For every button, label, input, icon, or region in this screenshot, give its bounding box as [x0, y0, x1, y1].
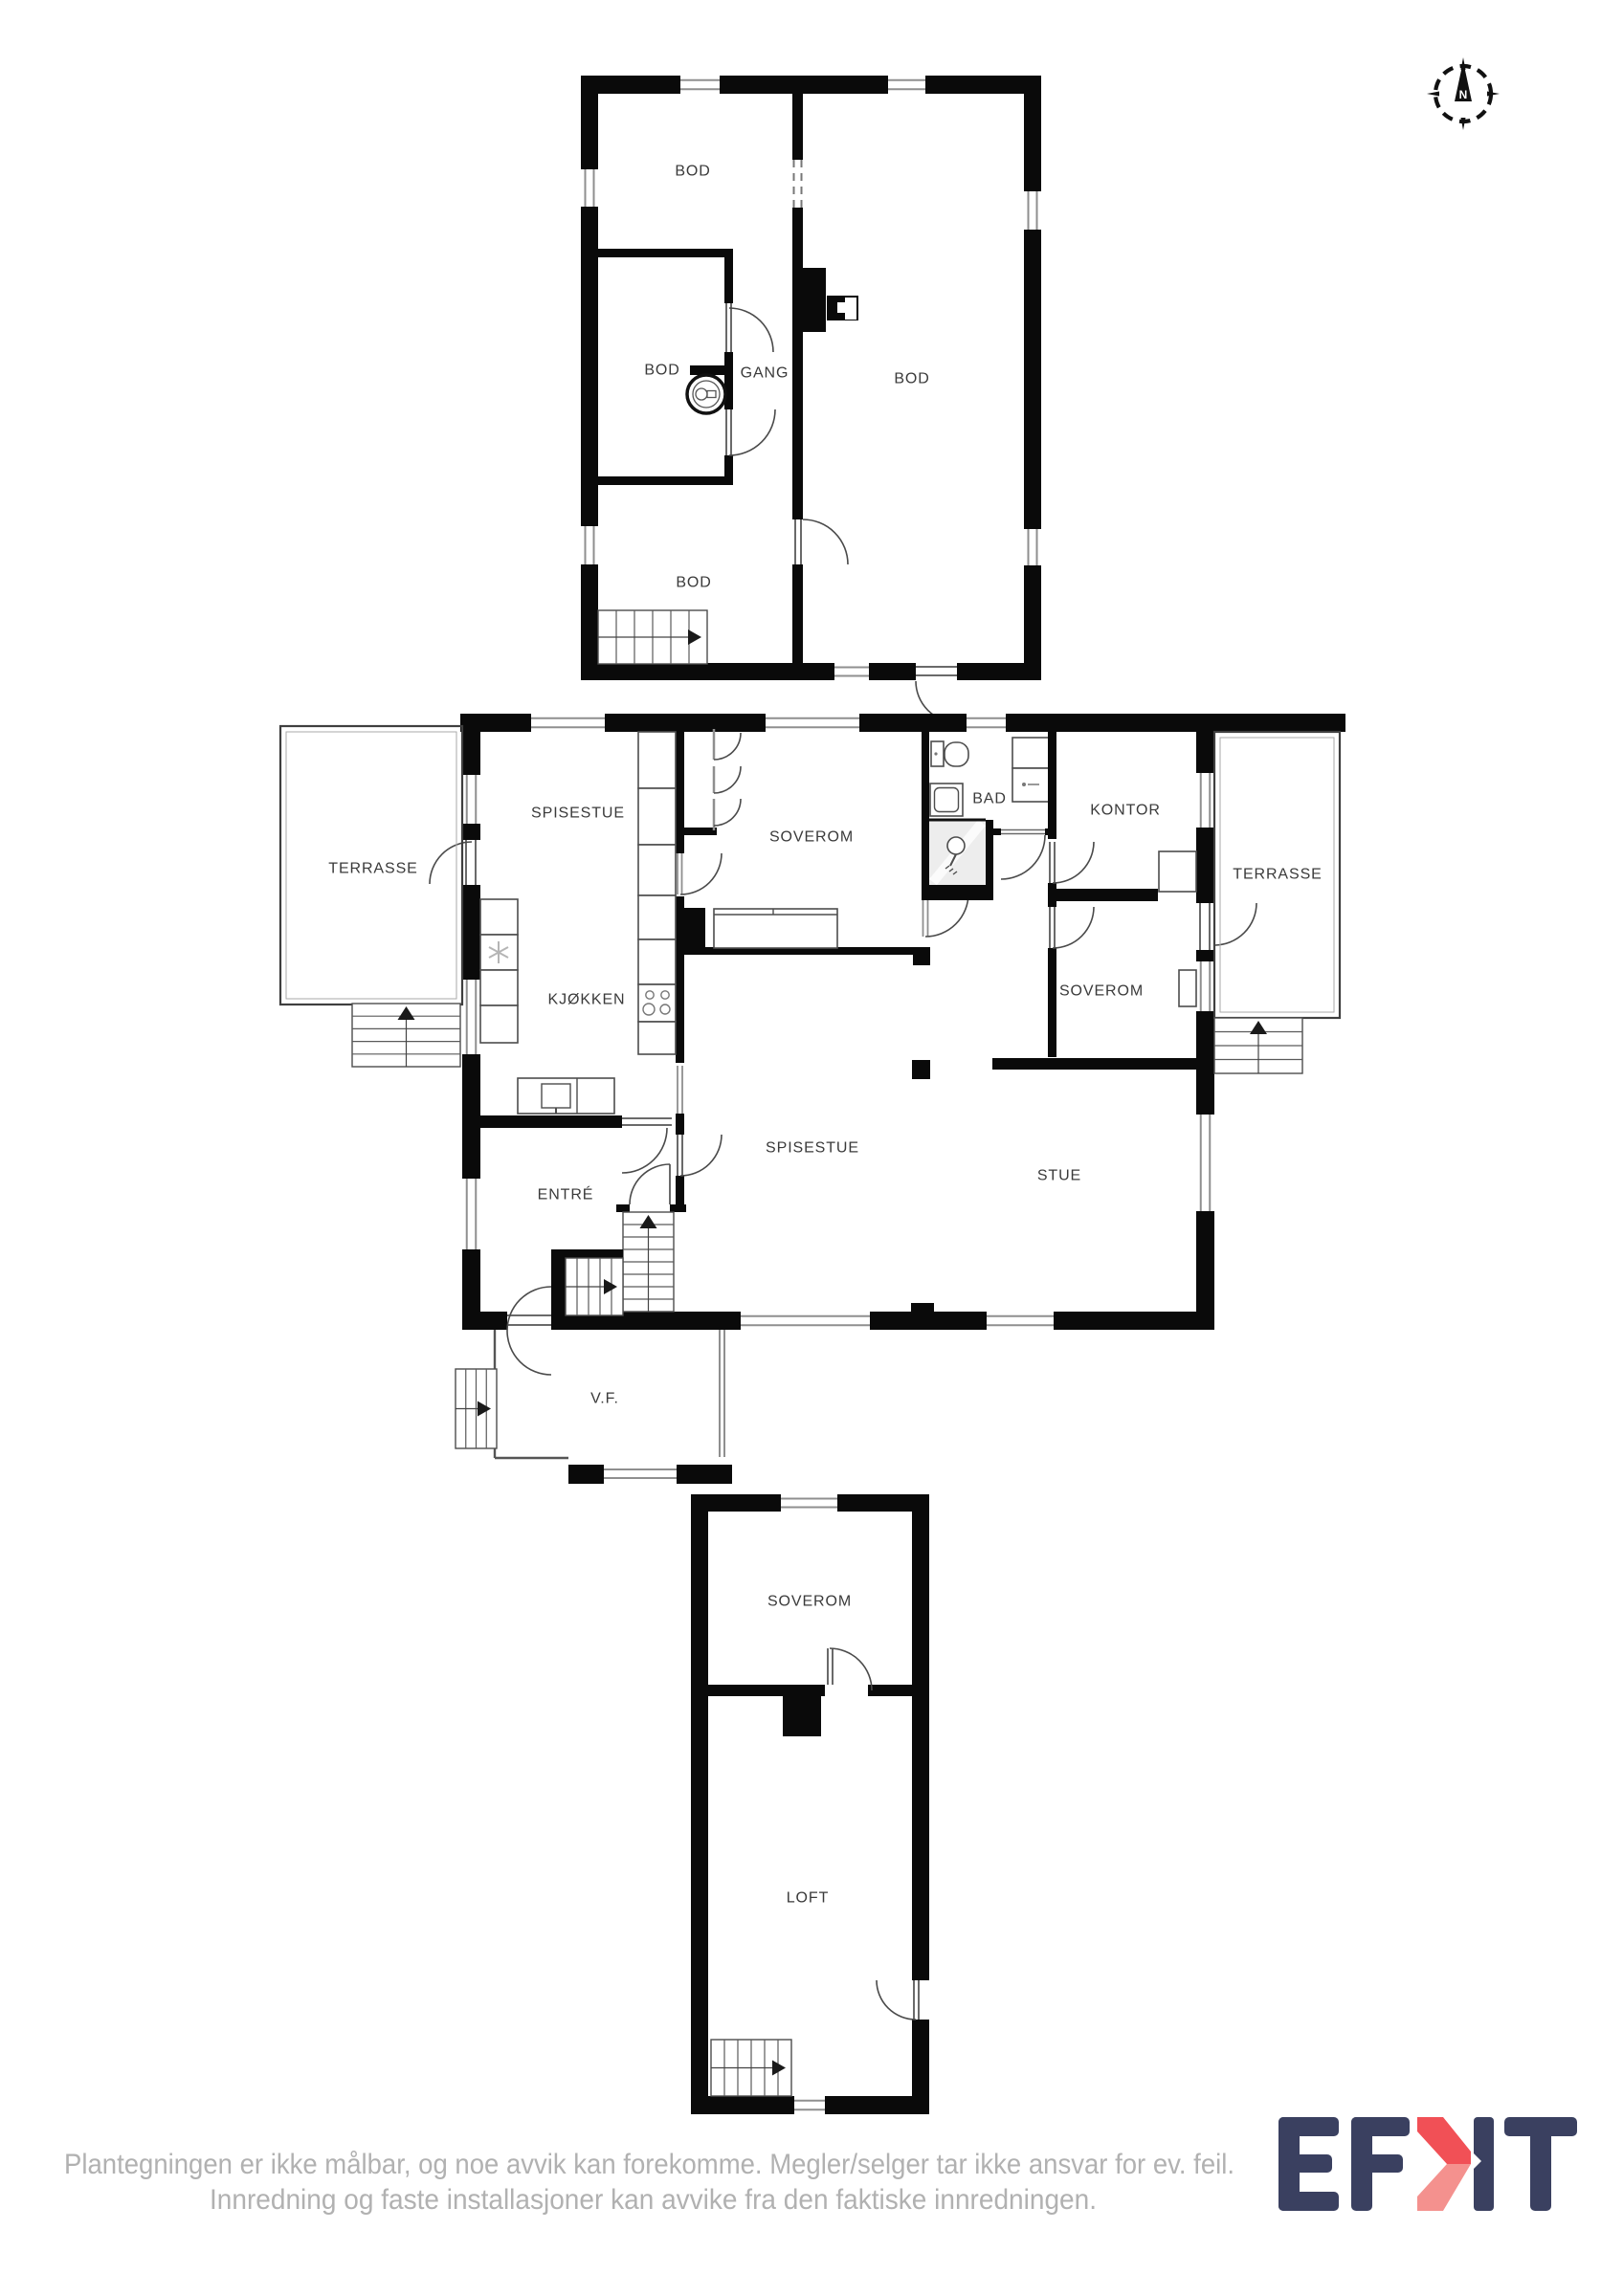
svg-text:KONTOR: KONTOR: [1090, 803, 1161, 819]
svg-text:N: N: [1459, 88, 1468, 101]
svg-text:BOD: BOD: [894, 371, 929, 387]
svg-text:SOVEROM: SOVEROM: [769, 829, 854, 846]
svg-text:BOD: BOD: [644, 363, 679, 379]
svg-text:KJØKKEN: KJØKKEN: [548, 992, 626, 1008]
svg-text:V.F.: V.F.: [590, 1391, 619, 1407]
svg-text:BOD: BOD: [675, 164, 710, 180]
svg-text:GANG: GANG: [741, 365, 789, 382]
svg-text:SOVEROM: SOVEROM: [767, 1594, 852, 1610]
svg-text:SPISESTUE: SPISESTUE: [766, 1140, 859, 1157]
svg-text:BOD: BOD: [676, 575, 711, 591]
svg-text:TERRASSE: TERRASSE: [1233, 867, 1322, 883]
svg-text:Innredning og faste installasj: Innredning og faste installasjoner kan a…: [210, 2184, 1097, 2216]
svg-text:SPISESTUE: SPISESTUE: [531, 806, 625, 822]
svg-text:STUE: STUE: [1037, 1168, 1081, 1184]
svg-text:BAD: BAD: [972, 791, 1007, 807]
svg-text:LOFT: LOFT: [787, 1890, 830, 1907]
svg-text:Plantegningen er ikke målbar,: Plantegningen er ikke målbar, og noe avv…: [64, 2149, 1234, 2180]
svg-text:TERRASSE: TERRASSE: [328, 861, 417, 877]
svg-text:SOVEROM: SOVEROM: [1059, 983, 1144, 1000]
svg-text:ENTRÉ: ENTRÉ: [538, 1185, 594, 1203]
